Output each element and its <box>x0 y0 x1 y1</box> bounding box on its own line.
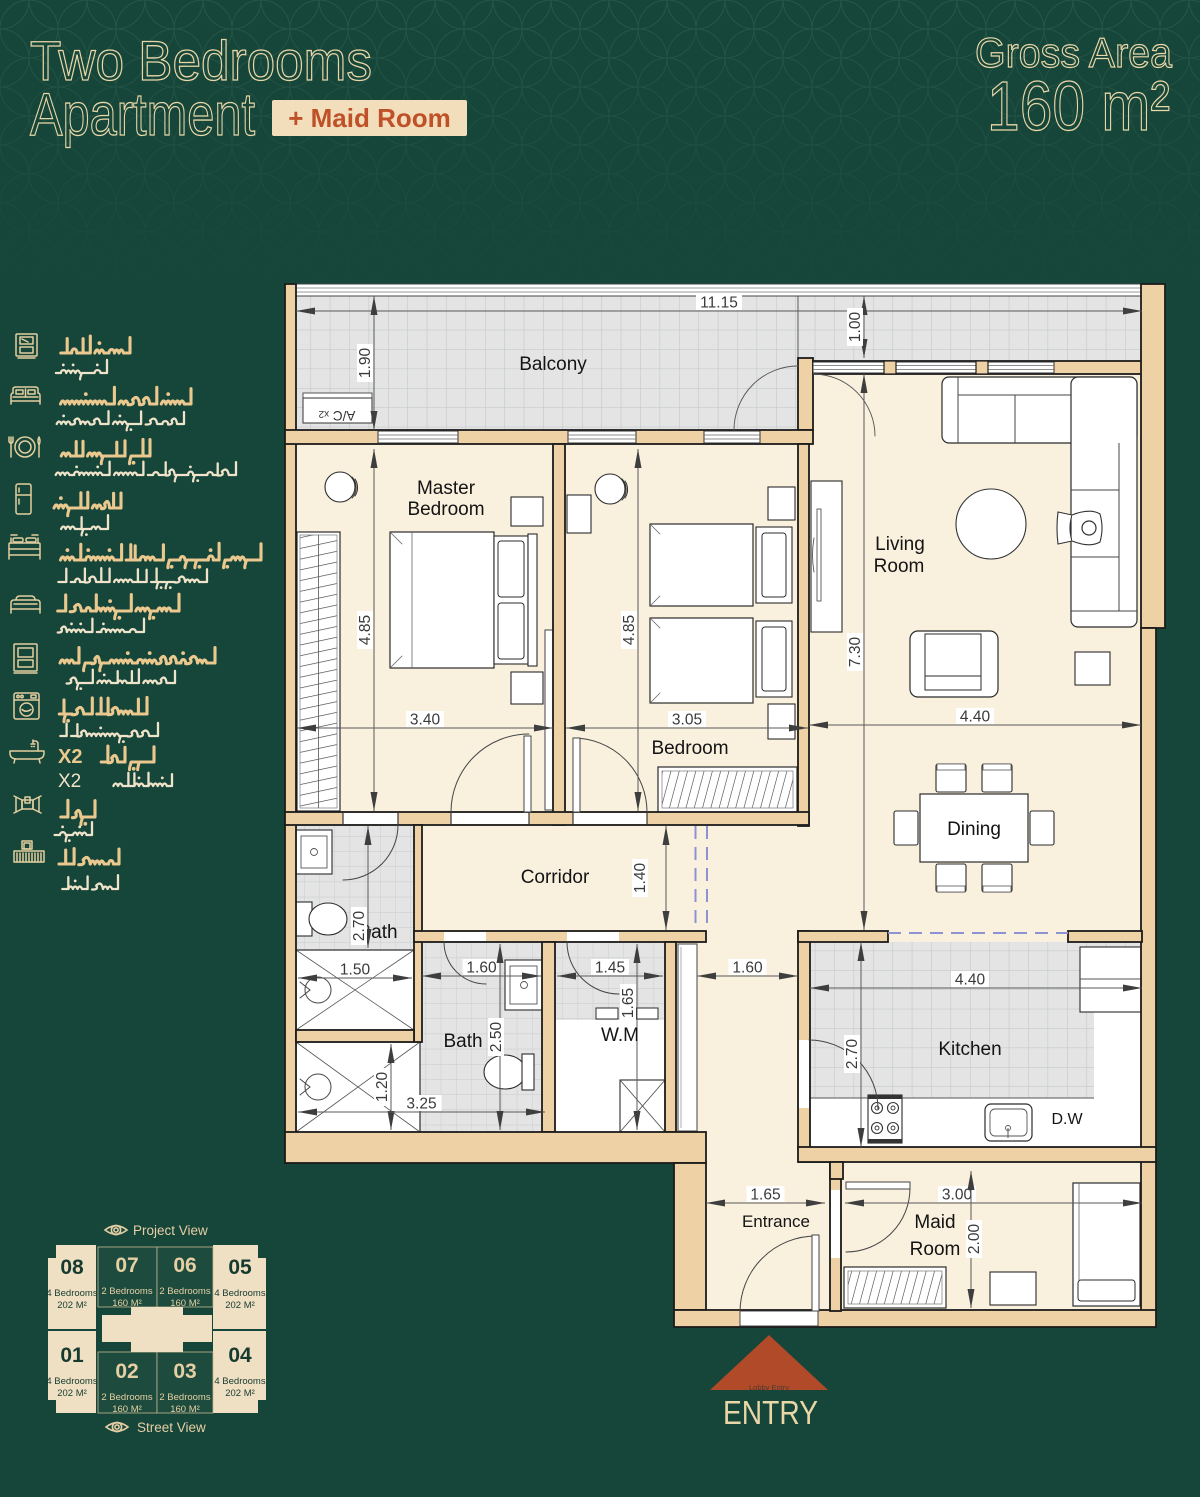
svg-text:02: 02 <box>115 1360 138 1383</box>
svg-text:160 M²: 160 M² <box>170 1298 200 1309</box>
svg-text:Room: Room <box>910 1239 961 1260</box>
svg-text:1.50: 1.50 <box>340 962 371 979</box>
svg-text:Bath: Bath <box>443 1031 482 1052</box>
svg-text:06: 06 <box>173 1254 196 1277</box>
svg-text:2 Bedrooms: 2 Bedrooms <box>159 1286 210 1297</box>
svg-text:Master: Master <box>417 478 476 499</box>
svg-text:2.70: 2.70 <box>844 1039 861 1070</box>
svg-text:202 M²: 202 M² <box>57 1300 87 1311</box>
svg-text:ENTRY: ENTRY <box>723 1394 818 1431</box>
svg-text:11.15: 11.15 <box>700 295 738 312</box>
svg-text:Entrance: Entrance <box>742 1212 810 1231</box>
svg-text:3.25: 3.25 <box>406 1096 436 1113</box>
svg-text:2 Bedrooms: 2 Bedrooms <box>101 1286 152 1297</box>
svg-text:08: 08 <box>60 1256 84 1279</box>
svg-text:2.00: 2.00 <box>966 1224 983 1255</box>
svg-text:Street View: Street View <box>137 1420 206 1435</box>
svg-text:X2: X2 <box>58 746 82 768</box>
svg-text:160 M²: 160 M² <box>112 1298 142 1309</box>
svg-text:4 Bedrooms: 4 Bedrooms <box>214 1376 265 1387</box>
svg-text:Corridor: Corridor <box>521 867 590 888</box>
svg-text:Apartment: Apartment <box>30 81 255 148</box>
svg-text:160 M²: 160 M² <box>112 1404 142 1415</box>
svg-text:4 Bedrooms: 4 Bedrooms <box>46 1288 97 1299</box>
svg-text:202 M²: 202 M² <box>57 1388 87 1399</box>
svg-text:W.M: W.M <box>601 1025 639 1046</box>
svg-text:1.65: 1.65 <box>620 988 637 1018</box>
svg-text:202 M²: 202 M² <box>225 1300 255 1311</box>
svg-text:7.30: 7.30 <box>847 637 864 668</box>
svg-text:Bedroom: Bedroom <box>651 738 728 759</box>
svg-text:4.85: 4.85 <box>621 615 638 645</box>
svg-text:Kitchen: Kitchen <box>938 1039 1001 1060</box>
svg-text:Bedroom: Bedroom <box>407 499 484 520</box>
svg-text:160 M²: 160 M² <box>170 1404 200 1415</box>
svg-text:2.50: 2.50 <box>488 1022 505 1053</box>
svg-text:1.60: 1.60 <box>732 960 763 977</box>
svg-text:1.90: 1.90 <box>357 348 374 379</box>
svg-text:07: 07 <box>115 1254 138 1277</box>
svg-text:1.20: 1.20 <box>374 1072 391 1103</box>
svg-text:4.40: 4.40 <box>960 709 991 726</box>
svg-text:3.40: 3.40 <box>410 712 441 729</box>
svg-text:Living: Living <box>875 534 925 555</box>
svg-text:03: 03 <box>173 1360 196 1383</box>
svg-text:05: 05 <box>228 1256 252 1279</box>
svg-text:Lobby Entry: Lobby Entry <box>749 1383 789 1392</box>
svg-text:1.00: 1.00 <box>847 312 864 343</box>
svg-text:1.65: 1.65 <box>750 1187 780 1204</box>
svg-text:01: 01 <box>60 1344 84 1367</box>
svg-text:3.05: 3.05 <box>672 712 702 729</box>
svg-text:160 m²: 160 m² <box>987 67 1170 145</box>
svg-text:D.W: D.W <box>1051 1111 1083 1128</box>
svg-text:Dining: Dining <box>947 819 1001 840</box>
svg-text:04: 04 <box>228 1344 252 1367</box>
svg-text:Project View: Project View <box>133 1223 208 1238</box>
svg-text:Maid: Maid <box>914 1212 955 1233</box>
svg-text:X2: X2 <box>58 771 81 792</box>
svg-text:2 Bedrooms: 2 Bedrooms <box>159 1392 210 1403</box>
svg-text:1.40: 1.40 <box>632 863 649 894</box>
svg-text:2.70: 2.70 <box>351 911 368 942</box>
svg-text:4.85: 4.85 <box>357 615 374 645</box>
svg-text:202 M²: 202 M² <box>225 1388 255 1399</box>
svg-text:1.60: 1.60 <box>466 960 497 977</box>
svg-text:1.45: 1.45 <box>595 960 625 977</box>
svg-text:Room: Room <box>874 556 925 577</box>
svg-text:Balcony: Balcony <box>519 354 587 375</box>
svg-text:4 Bedrooms: 4 Bedrooms <box>214 1288 265 1299</box>
svg-text:2 Bedrooms: 2 Bedrooms <box>101 1392 152 1403</box>
svg-text:4 Bedrooms: 4 Bedrooms <box>46 1376 97 1387</box>
svg-text:4.40: 4.40 <box>955 972 986 989</box>
